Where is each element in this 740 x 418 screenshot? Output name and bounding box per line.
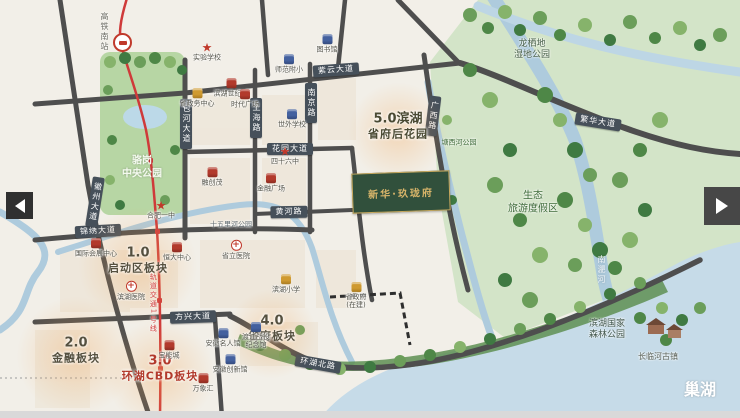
poi-blue: 图书馆 bbox=[317, 34, 338, 53]
tree-icon bbox=[484, 333, 496, 345]
tree-icon bbox=[713, 28, 727, 42]
government-icon bbox=[192, 88, 202, 98]
tree-icon bbox=[604, 288, 616, 300]
poi-blue: 安徽创新馆 bbox=[213, 354, 248, 373]
tree-icon bbox=[652, 112, 668, 128]
tree-icon bbox=[623, 15, 637, 29]
project-name: 新华·玖珑府 bbox=[368, 183, 434, 200]
tree-icon bbox=[676, 314, 688, 326]
poi-blue: 世外学校 bbox=[278, 109, 306, 128]
tree-icon bbox=[498, 5, 512, 19]
tree-icon bbox=[544, 313, 556, 325]
map-label: 南淝河 bbox=[596, 255, 606, 285]
poi-red: 融创茂 bbox=[202, 167, 223, 186]
poi-label: 四十六中 bbox=[271, 157, 299, 165]
government-icon bbox=[351, 282, 361, 292]
prev-arrow-button[interactable] bbox=[6, 192, 33, 219]
poi-label: 万象汇 bbox=[193, 384, 214, 392]
tree-icon bbox=[514, 24, 526, 36]
poi-red: 国际会展中心 bbox=[75, 238, 117, 257]
tree-icon bbox=[532, 247, 548, 263]
poi-red: 宝能城 bbox=[159, 340, 180, 359]
map-label: 生态 旅游度假区 bbox=[508, 191, 558, 216]
tree-icon bbox=[482, 22, 494, 34]
poi-label: 世外学校 bbox=[278, 120, 306, 128]
tree-icon bbox=[394, 355, 406, 367]
poi-red: 金融广场 bbox=[257, 173, 285, 192]
tree-icon bbox=[583, 168, 597, 182]
tree-icon bbox=[119, 52, 131, 64]
tree-icon bbox=[638, 203, 652, 217]
government-icon bbox=[281, 274, 291, 284]
poi-label: 滨湖医院 bbox=[117, 293, 145, 301]
tree-icon bbox=[578, 18, 592, 32]
tree-icon bbox=[107, 135, 117, 145]
poi-gold: 省政府 (在建) bbox=[346, 282, 367, 310]
tree-icon bbox=[537, 87, 553, 103]
poi-label: 恒大中心 bbox=[163, 253, 191, 261]
road-sign: 黄河路 bbox=[270, 206, 307, 219]
plate-name: 环湖CBD板块 bbox=[122, 369, 199, 382]
tree-icon bbox=[454, 341, 466, 353]
poi-label: 时代广场 bbox=[231, 100, 259, 108]
tree-icon bbox=[105, 175, 115, 185]
tree-icon bbox=[177, 65, 187, 75]
tree-icon bbox=[673, 21, 687, 35]
tree-icon bbox=[578, 218, 592, 232]
plate-number: 2.0 bbox=[52, 336, 100, 352]
school-star-icon: ★ bbox=[280, 146, 291, 156]
building-icon bbox=[91, 238, 101, 248]
building-icon bbox=[240, 89, 250, 99]
tree-icon bbox=[364, 361, 376, 373]
poi-label: 图书馆 bbox=[317, 45, 338, 53]
tree-icon bbox=[498, 273, 512, 287]
tree-icon bbox=[463, 63, 477, 77]
school-star-icon: ★ bbox=[202, 42, 213, 52]
tree-icon bbox=[694, 302, 706, 314]
poi-red: 万象汇 bbox=[193, 373, 214, 392]
map-label: 高铁南站 bbox=[99, 12, 109, 52]
tree-icon bbox=[568, 258, 582, 272]
building-icon bbox=[225, 354, 235, 364]
map-label: 塘西河公园 bbox=[442, 139, 477, 148]
tree-icon bbox=[634, 277, 646, 289]
poi-star: ★合肥一中 bbox=[147, 200, 175, 219]
building-icon bbox=[287, 109, 297, 119]
building-icon bbox=[322, 34, 332, 44]
hospital-icon: + bbox=[126, 281, 137, 292]
school-star-icon: ★ bbox=[156, 200, 167, 210]
road-sign: 南京路 bbox=[305, 83, 317, 123]
plate-name: 启动区板块 bbox=[108, 261, 168, 274]
tree-icon bbox=[487, 177, 503, 193]
poi-gold: 省政务中心 bbox=[180, 88, 215, 107]
poi-label: 实验学校 bbox=[193, 53, 221, 61]
map-label: 巢湖 bbox=[684, 380, 716, 400]
building-icon bbox=[266, 173, 276, 183]
poi-label: 省政务中心 bbox=[180, 99, 215, 107]
project-parcel: 新华·玖珑府 bbox=[351, 170, 450, 213]
building-icon bbox=[198, 373, 208, 383]
poi-label: 安徽名人馆 bbox=[206, 339, 241, 347]
plate-number: 1.0 bbox=[108, 246, 168, 262]
building-icon bbox=[251, 322, 261, 332]
building-icon bbox=[164, 340, 174, 350]
tree-icon bbox=[164, 56, 176, 68]
poi-red: 时代广场 bbox=[231, 89, 259, 108]
left-arrow-icon bbox=[15, 199, 25, 213]
plate-label: 1.0启动区板块 bbox=[108, 246, 168, 275]
map-label: 十五里河公园 bbox=[210, 221, 252, 230]
poi-label: 渡江战役 纪念馆 bbox=[242, 333, 270, 350]
plate-label: 2.0金融板块 bbox=[52, 336, 100, 365]
tree-icon bbox=[553, 113, 567, 127]
tree-icon bbox=[533, 11, 547, 25]
poi-blue: 师范附小 bbox=[275, 54, 303, 73]
poi-label: 滨湖小学 bbox=[272, 285, 300, 293]
tree-icon bbox=[522, 292, 538, 308]
plate-label: 5.0滨湖省府后花园 bbox=[368, 112, 428, 141]
poi-label: 金融广场 bbox=[257, 184, 285, 192]
hsr-station-icon bbox=[113, 33, 132, 52]
tree-icon bbox=[503, 143, 517, 157]
tree-icon bbox=[604, 34, 616, 46]
poi-cross: +省立医院 bbox=[222, 240, 250, 260]
tree-icon bbox=[612, 172, 628, 188]
tree-icon bbox=[554, 29, 566, 41]
poi-label: 省政府 (在建) bbox=[346, 293, 367, 310]
tree-icon bbox=[134, 56, 146, 68]
central-park bbox=[100, 52, 185, 215]
plate-name: 省府后花园 bbox=[368, 127, 428, 140]
poi-label: 国际会展中心 bbox=[75, 249, 117, 257]
tree-icon bbox=[694, 39, 706, 51]
tree-icon bbox=[574, 301, 586, 313]
tree-icon bbox=[649, 32, 661, 44]
tree-icon bbox=[103, 85, 113, 95]
poi-label: 师范附小 bbox=[275, 65, 303, 73]
tree-icon bbox=[633, 143, 647, 157]
tree-icon bbox=[656, 302, 668, 314]
poi-label: 合肥一中 bbox=[147, 211, 175, 219]
plate-name: 金融板块 bbox=[52, 351, 100, 364]
poi-label: 宝能城 bbox=[159, 351, 180, 359]
tree-icon bbox=[608, 261, 622, 275]
building-icon bbox=[172, 242, 182, 252]
tree-icon bbox=[424, 349, 436, 361]
building-icon bbox=[226, 78, 236, 88]
location-map: 新华·玖珑府 1.0启动区板块2.0金融板块3.0环湖CBD板块4.0省府板块5… bbox=[0, 0, 740, 418]
next-arrow-button[interactable] bbox=[704, 187, 740, 225]
tree-icon bbox=[170, 145, 180, 155]
map-label: 轨道交通1号线 bbox=[149, 273, 158, 333]
plate-number: 5.0滨湖 bbox=[368, 112, 428, 128]
poi-red: 恒大中心 bbox=[163, 242, 191, 261]
tree-icon bbox=[514, 323, 526, 335]
tree-icon bbox=[104, 56, 116, 68]
frame-bottom-bar bbox=[0, 411, 740, 418]
tree-icon bbox=[149, 52, 161, 64]
map-label: 龙栖地 湿地公园 bbox=[514, 39, 550, 62]
building-icon bbox=[284, 54, 294, 64]
poi-cross: +滨湖医院 bbox=[117, 281, 145, 301]
poi-blue: 渡江战役 纪念馆 bbox=[242, 322, 270, 350]
tree-icon bbox=[634, 312, 646, 324]
tree-icon bbox=[482, 92, 498, 108]
poi-blue: 安徽名人馆 bbox=[206, 328, 241, 347]
poi-star: ★四十六中 bbox=[271, 146, 299, 165]
map-label: 骆岗 中央公园 bbox=[122, 156, 162, 181]
poi-label: 安徽创新馆 bbox=[213, 365, 248, 373]
poi-gold: 滨湖小学 bbox=[272, 274, 300, 293]
poi-star: ★实验学校 bbox=[193, 42, 221, 61]
building-icon bbox=[207, 167, 217, 177]
map-label: 长临河古镇 bbox=[638, 352, 678, 362]
hospital-icon: + bbox=[231, 240, 242, 251]
tree-icon bbox=[557, 192, 573, 208]
tree-icon bbox=[567, 142, 583, 158]
tree-icon bbox=[463, 8, 477, 22]
map-label: 滨湖国家 森林公园 bbox=[589, 319, 625, 342]
right-arrow-icon bbox=[716, 198, 728, 214]
building-icon bbox=[218, 328, 228, 338]
tree-icon bbox=[622, 232, 638, 248]
poi-label: 融创茂 bbox=[202, 178, 223, 186]
poi-label: 省立医院 bbox=[222, 252, 250, 260]
